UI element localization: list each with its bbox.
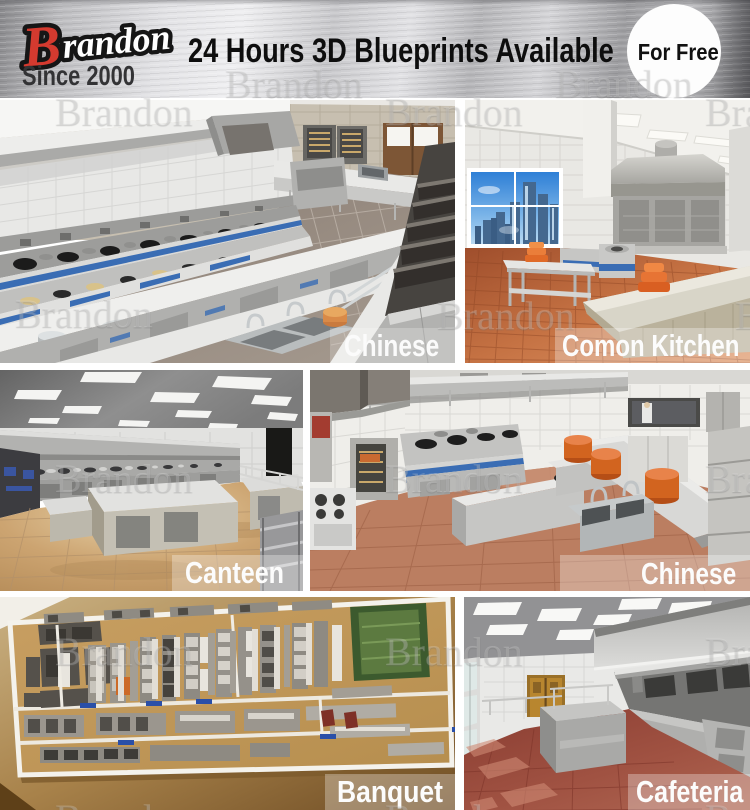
svg-text:Banquet: Banquet [337,775,443,809]
svg-text:randon: randon [61,17,172,66]
svg-text:Chinese: Chinese [344,328,439,362]
svg-text:Cafeteria: Cafeteria [636,773,744,808]
svg-text:Canteen: Canteen [185,554,284,589]
svg-text:Chinese: Chinese [641,556,736,590]
svg-text:Comon Kitchen: Comon Kitchen [562,328,739,363]
